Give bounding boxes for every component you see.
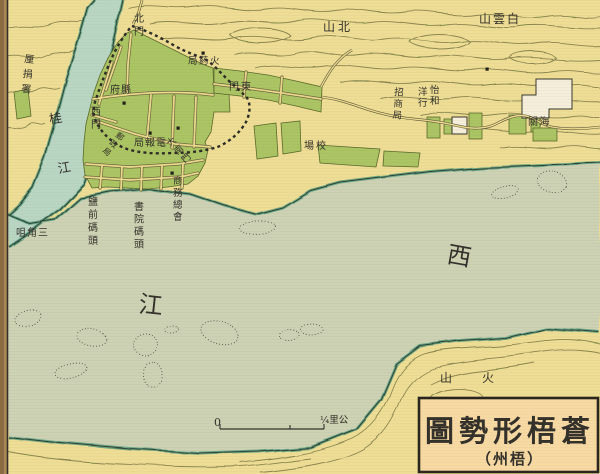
page-gutter [0,0,8,474]
map-title: 圖勢形梧蒼 [425,414,595,448]
map-subtitle: （州梧） [476,450,544,468]
powder-bureau-label: 局葯火 [188,56,221,67]
sanjiao-point-label: 咀角三 [16,227,49,239]
jardine-name-label: 怡和 [430,84,440,107]
wuzhou-map-svg: 厘捐署桂江北門局葯火門東府縣西門郵政局局報電大南門商務總會書院碼頭鹽前碼頭咀角三… [0,0,600,474]
xi-river-char-west: 西 [445,240,473,272]
telegraph-office-label: 局報電 [134,137,167,149]
scale-zero: 0 [214,416,221,429]
drill-ground-label: 場校 [304,139,328,152]
county-office-label: 府縣 [110,83,132,96]
customs-label: 關海 [528,115,551,128]
jardine-hong-label: 洋行 [418,86,428,109]
academy-wharf-label: 書院碼頭 [134,200,144,251]
north-mountain-label: 山北 [323,20,353,34]
wuzhou-historical-map: 厘捐署桂江北門局葯火門東府縣西門郵政局局報電大南門商務總會書院碼頭鹽前碼頭咀角三… [0,0,600,474]
title-box: 圖勢形梧蒼 （州梧） [419,398,598,472]
east-gate-label: 門東 [229,80,253,93]
scale-unit: ¼里公 [320,415,349,426]
baiyun-mountain-label: 山雲白 [479,11,521,26]
volcano-label: 山火 [440,371,524,385]
xi-river-char-jiang: 江 [137,290,164,320]
